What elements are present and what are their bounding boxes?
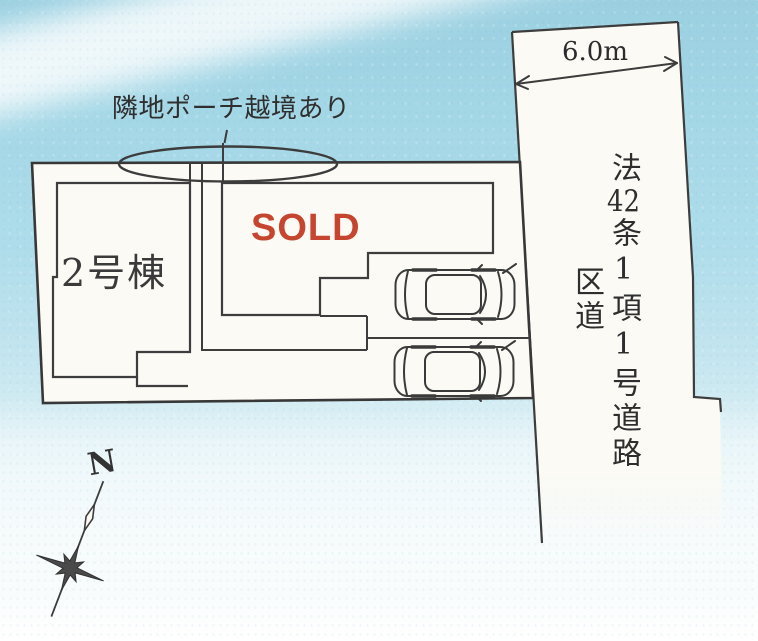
road-category-label: 区道 <box>564 266 608 334</box>
encroachment-annotation-label: 隣地ポーチ越境あり <box>112 96 351 122</box>
building-2-label: 2号棟 <box>61 254 167 292</box>
compass-icon <box>18 468 137 629</box>
road-classification-number: 42 <box>606 187 641 217</box>
road-classification-prefix: 法 <box>606 152 641 187</box>
road-width-label: 6.0m <box>562 39 628 65</box>
compass-north-label: N <box>86 446 119 481</box>
sold-status-label: SOLD <box>251 209 361 247</box>
site-plan-image: 隣地ポーチ越境あり 2号棟 SOLD 6.0m 法42条1項1号道路 区道 N <box>0 0 758 641</box>
road-classification-suffix: 条1項1号道路 <box>606 217 641 472</box>
